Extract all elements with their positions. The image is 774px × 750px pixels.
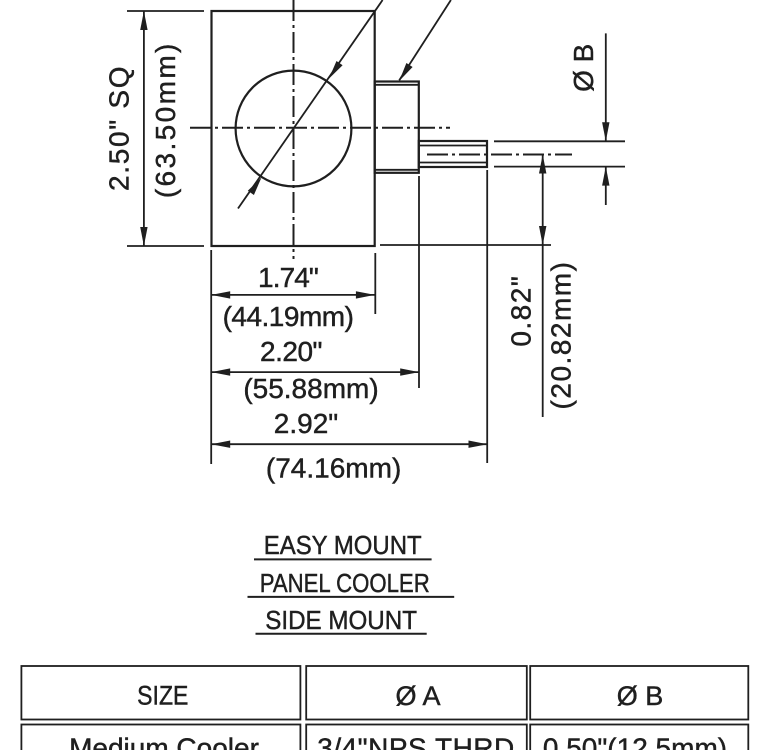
svg-text:EASY MOUNT: EASY MOUNT	[264, 531, 422, 560]
svg-text:2.20": 2.20"	[260, 336, 322, 367]
svg-text:(63.50mm): (63.50mm)	[150, 41, 181, 198]
svg-text:(74.16mm): (74.16mm)	[266, 453, 401, 484]
svg-text:0.50"(12.5mm): 0.50"(12.5mm)	[543, 733, 727, 750]
svg-text:Ø A: Ø A	[395, 681, 440, 711]
svg-text:PANEL COOLER: PANEL COOLER	[260, 569, 430, 598]
svg-text:2.50" SQ: 2.50" SQ	[104, 65, 135, 191]
svg-text:(55.88mm): (55.88mm)	[243, 373, 378, 404]
svg-text:(44.19mm): (44.19mm)	[223, 301, 354, 332]
svg-text:Ø B: Ø B	[617, 681, 664, 711]
svg-text:Medium Cooler: Medium Cooler	[69, 733, 259, 750]
svg-text:0.82": 0.82"	[505, 275, 536, 347]
svg-text:SIDE MOUNT: SIDE MOUNT	[265, 606, 417, 635]
svg-text:1.74": 1.74"	[258, 262, 318, 293]
svg-text:(20.82mm): (20.82mm)	[545, 261, 576, 410]
svg-text:Ø B: Ø B	[568, 44, 599, 92]
svg-text:3/4"NPS THRD: 3/4"NPS THRD	[317, 733, 514, 750]
svg-text:SIZE: SIZE	[137, 682, 188, 711]
svg-text:2.92": 2.92"	[274, 408, 338, 439]
